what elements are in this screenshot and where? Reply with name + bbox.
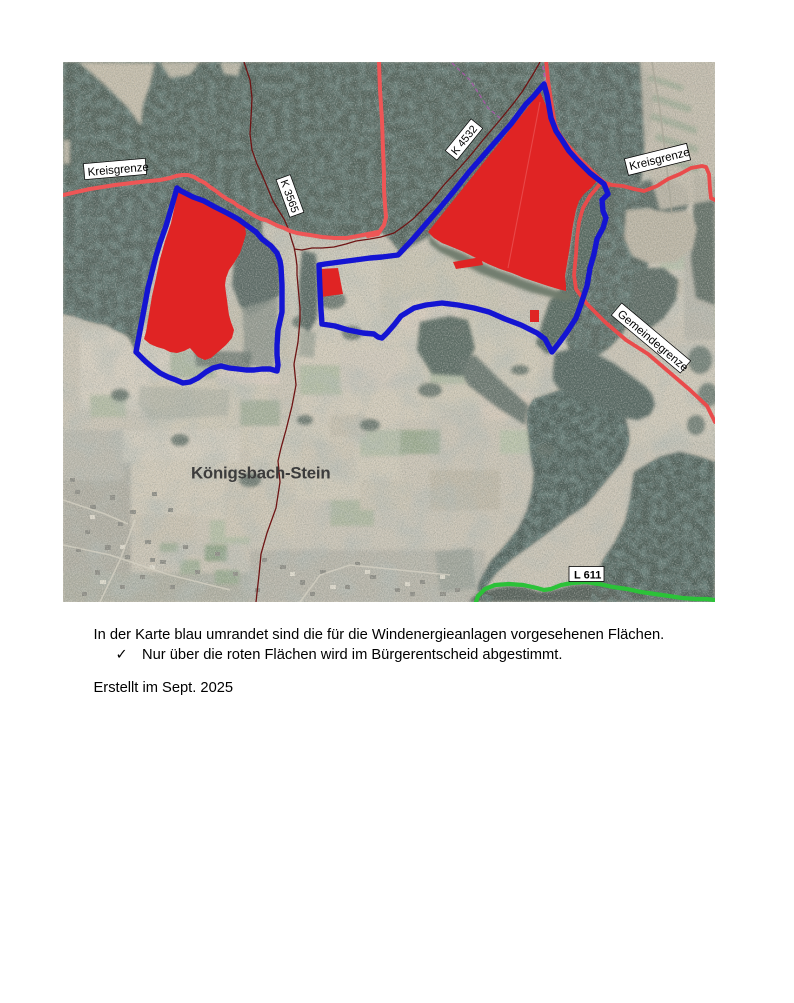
svg-text:L 611: L 611 — [574, 570, 601, 582]
svg-text:Königsbach-Stein: Königsbach-Stein — [191, 464, 330, 483]
